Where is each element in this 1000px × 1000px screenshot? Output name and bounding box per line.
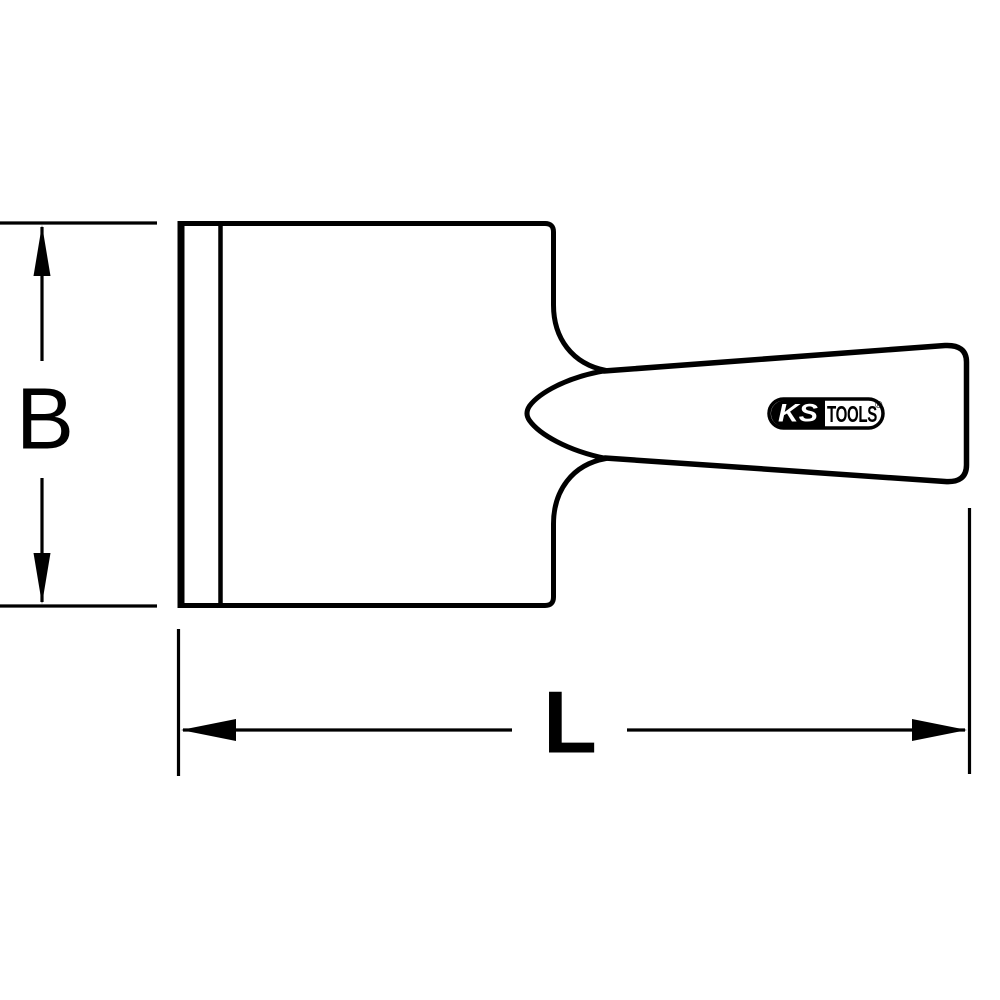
dim-l-arrowhead-right	[912, 719, 967, 741]
ks-tools-logo: KS TOOLS ®	[769, 399, 883, 428]
dim-b-label: B	[16, 371, 74, 468]
dim-l-arrowhead-left	[181, 719, 236, 741]
logo-tools-text: TOOLS	[827, 401, 877, 427]
dimension-l: L	[179, 508, 970, 776]
scraper-tool: KS TOOLS ®	[181, 221, 967, 608]
logo-ks-text: KS	[778, 400, 818, 428]
tang-outline	[527, 371, 606, 459]
dimension-b: B	[0, 223, 157, 606]
dim-l-label: L	[543, 673, 597, 772]
dim-b-arrowhead-down	[34, 553, 51, 604]
scraper-diagram: KS TOOLS ® B L	[0, 0, 1000, 1000]
technical-drawing-canvas: KS TOOLS ® B L	[0, 0, 1000, 1000]
blade-outline	[181, 224, 606, 606]
logo-registered-mark: ®	[875, 400, 883, 411]
dim-b-arrowhead-up	[34, 225, 51, 276]
